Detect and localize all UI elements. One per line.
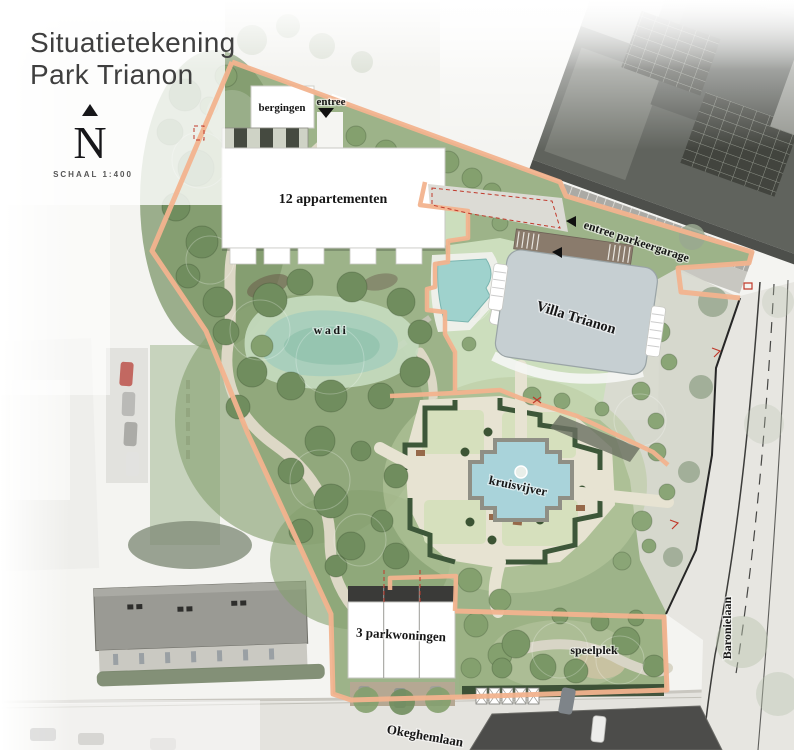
compass-letter: N <box>73 117 106 168</box>
site-plan-map: bergingen entree 12 appartementen entree… <box>0 0 794 750</box>
scale-label: SCHAAL 1:400 <box>53 170 133 179</box>
site-plan-page: bergingen entree 12 appartementen entree… <box>0 0 794 750</box>
label-speelplek: speelplek <box>570 643 618 657</box>
label-baronielaan: Baronielaan <box>720 596 734 659</box>
entree-path <box>317 112 343 150</box>
label-bergingen: bergingen <box>258 102 305 114</box>
fountain <box>515 466 527 478</box>
page-title-line2: Park Trianon <box>30 59 194 90</box>
label-appartementen: 12 appartementen <box>279 192 388 207</box>
storage-units-strip <box>222 128 308 148</box>
page-title-line1: Situatietekening <box>30 27 236 58</box>
label-wadi: wadi <box>314 323 349 337</box>
label-entree: entree <box>316 96 345 108</box>
